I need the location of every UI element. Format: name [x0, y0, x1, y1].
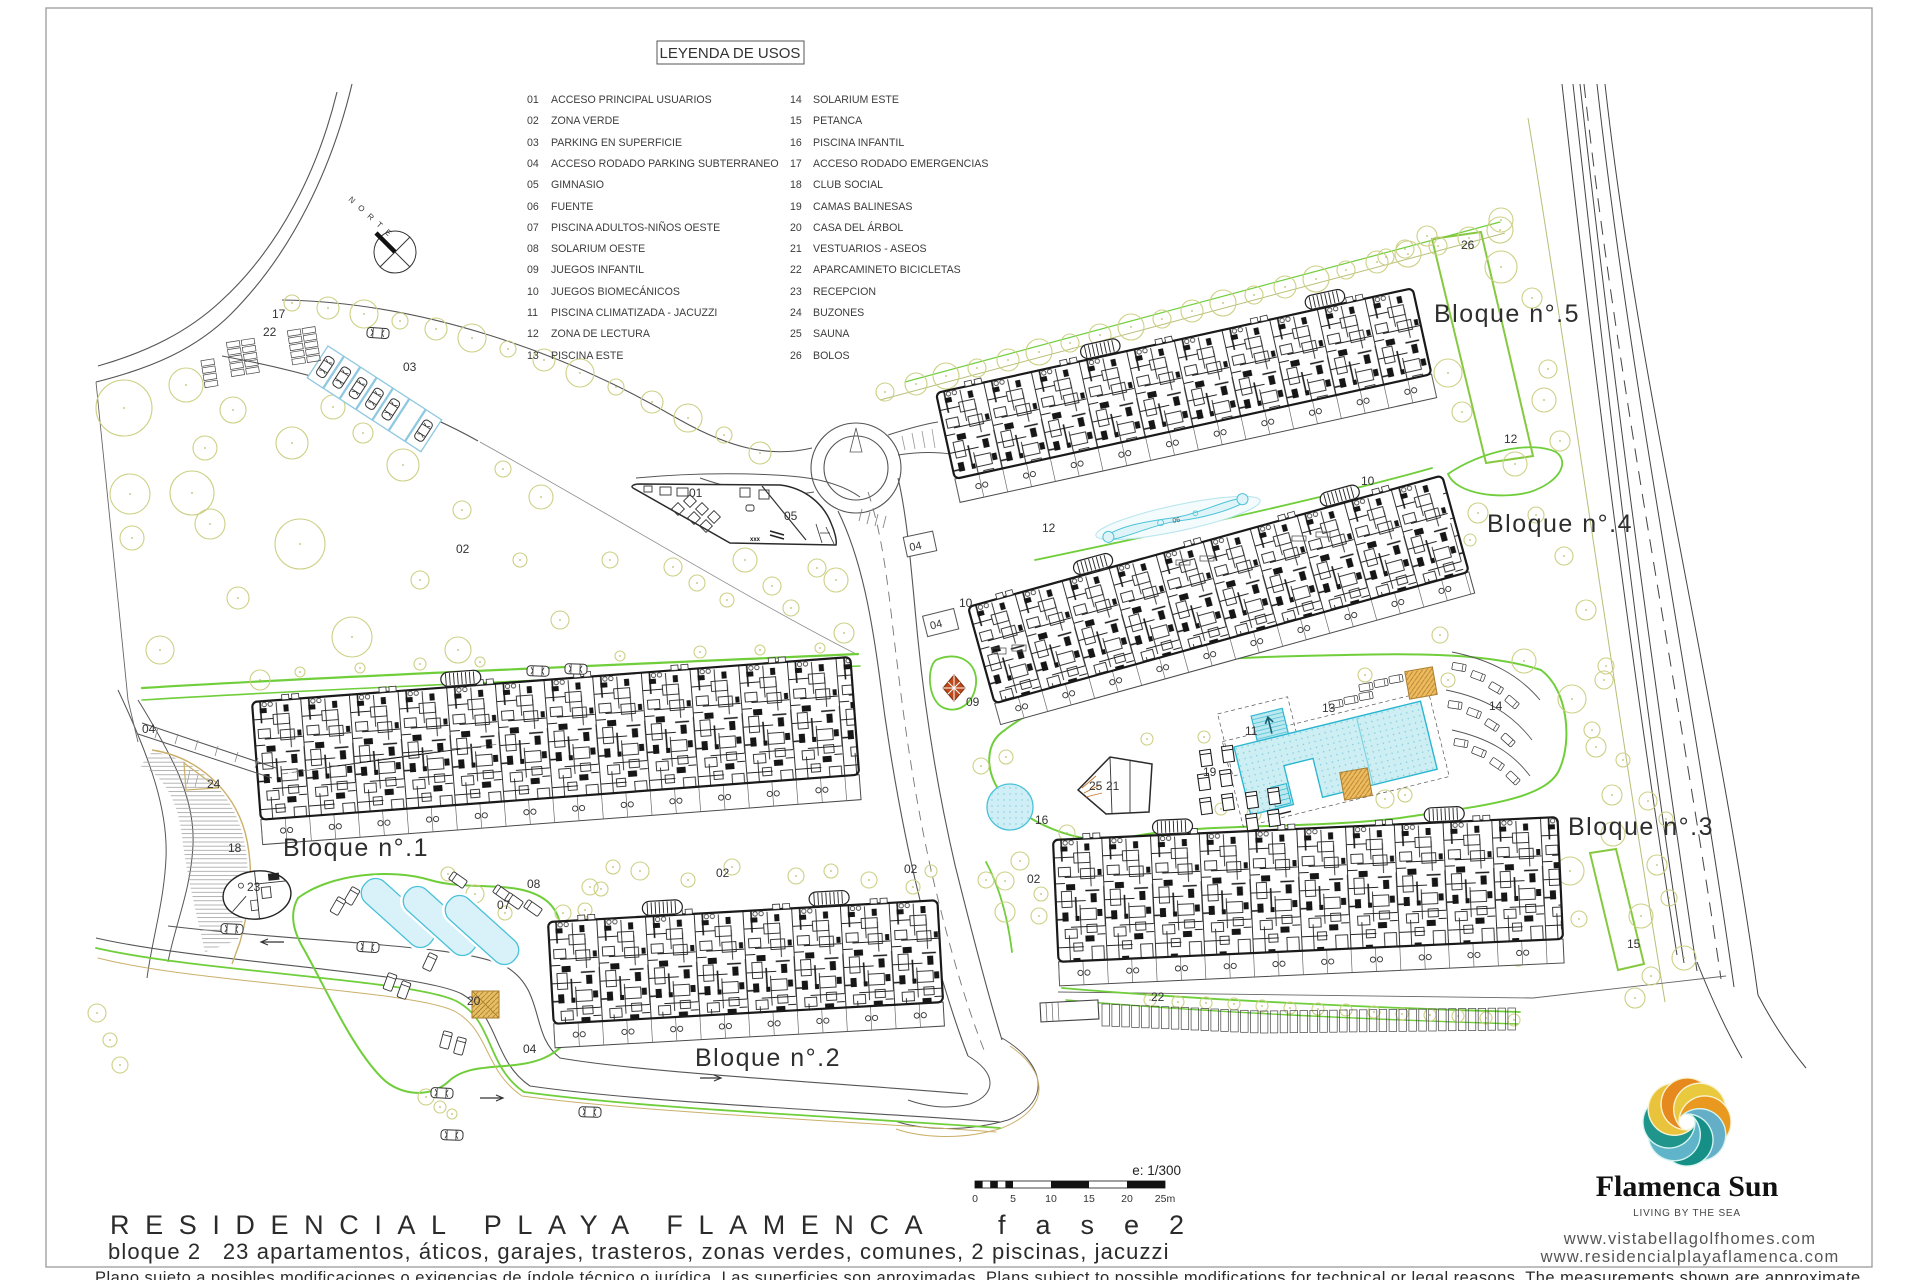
svg-text:15: 15: [1083, 1193, 1095, 1205]
svg-text:11: 11: [1245, 724, 1258, 738]
svg-text:24: 24: [207, 777, 221, 791]
svg-text:22: 22: [263, 325, 277, 339]
svg-text:ZONA DE LECTURA: ZONA DE LECTURA: [551, 328, 651, 340]
svg-text:07: 07: [497, 898, 511, 912]
svg-text:bloque 2 23 apartamentos, át: bloque 2 23 apartamentos, áticos, garaje…: [108, 1239, 1170, 1264]
svg-text:02: 02: [456, 542, 470, 556]
svg-text:18: 18: [790, 179, 802, 191]
svg-text:xxx: xxx: [750, 537, 761, 543]
svg-text:04: 04: [908, 540, 922, 554]
svg-text:10: 10: [1045, 1193, 1057, 1205]
svg-text:21: 21: [790, 243, 802, 255]
svg-text:20: 20: [790, 222, 802, 234]
svg-text:10: 10: [1361, 474, 1375, 488]
svg-text:26: 26: [1461, 238, 1475, 252]
svg-text:JUEGOS BIOMECÁNICOS: JUEGOS BIOMECÁNICOS: [551, 285, 680, 298]
svg-text:ACCESO PRINCIPAL USUARIOS: ACCESO PRINCIPAL USUARIOS: [551, 94, 712, 106]
svg-text:25: 25: [790, 328, 802, 340]
svg-text:13: 13: [527, 350, 539, 362]
svg-text:www.residencialplayaflamenca.c: www.residencialplayaflamenca.com: [1540, 1248, 1840, 1266]
svg-text:02: 02: [716, 866, 730, 880]
svg-text:14: 14: [1489, 699, 1503, 713]
svg-text:GIMNASIO: GIMNASIO: [551, 179, 604, 191]
svg-text:ZONA VERDE: ZONA VERDE: [551, 115, 619, 127]
svg-text:0: 0: [972, 1193, 978, 1205]
svg-text:17: 17: [272, 307, 286, 321]
svg-text:05: 05: [527, 179, 539, 191]
svg-text:Bloque n°.4: Bloque n°.4: [1487, 510, 1633, 538]
svg-text:SAUNA: SAUNA: [813, 328, 850, 340]
svg-text:04: 04: [142, 722, 156, 736]
svg-text:RECEPCION: RECEPCION: [813, 286, 876, 298]
svg-text:Plano sujeto a posibles modifi: Plano sujeto a posibles modificaciones o…: [95, 1269, 1866, 1280]
svg-text:PETANCA: PETANCA: [813, 115, 863, 127]
svg-text:01: 01: [527, 94, 539, 106]
svg-text:PISCINA ESTE: PISCINA ESTE: [551, 350, 623, 362]
svg-text:19: 19: [790, 201, 802, 213]
svg-text:23: 23: [790, 286, 802, 298]
svg-text:20: 20: [467, 994, 481, 1008]
svg-text:03: 03: [403, 360, 417, 374]
svg-text:09: 09: [966, 695, 980, 709]
svg-text:16: 16: [1035, 813, 1049, 827]
svg-text:06: 06: [527, 201, 539, 213]
svg-text:Bloque n°.2: Bloque n°.2: [695, 1044, 841, 1072]
svg-text:15: 15: [790, 115, 802, 127]
svg-text:08: 08: [527, 877, 541, 891]
svg-text:fase2: fase2: [998, 1210, 1214, 1240]
svg-text:APARCAMINETO BICICLETAS: APARCAMINETO BICICLETAS: [813, 264, 961, 276]
svg-text:CAMAS BALINESAS: CAMAS BALINESAS: [813, 201, 913, 213]
svg-text:PISCINA CLIMATIZADA - JACUZZI: PISCINA CLIMATIZADA - JACUZZI: [551, 307, 717, 319]
svg-text:LEYENDA DE USOS: LEYENDA DE USOS: [660, 45, 801, 62]
svg-text:BOLOS: BOLOS: [813, 350, 850, 362]
svg-text:BUZONES: BUZONES: [813, 307, 864, 319]
svg-text:19: 19: [1203, 765, 1217, 779]
svg-text:VESTUARIOS - ASEOS: VESTUARIOS - ASEOS: [813, 243, 927, 255]
svg-text:08: 08: [527, 243, 539, 255]
svg-text:13: 13: [1322, 701, 1336, 715]
svg-text:CASA DEL ÁRBOL: CASA DEL ÁRBOL: [813, 221, 903, 234]
svg-text:Bloque n°.3: Bloque n°.3: [1568, 813, 1714, 841]
svg-text:24: 24: [790, 307, 802, 319]
svg-text:Bloque n°.5: Bloque n°.5: [1434, 300, 1580, 328]
svg-text:ACCESO RODADO EMERGENCIAS: ACCESO RODADO EMERGENCIAS: [813, 158, 988, 170]
svg-text:10: 10: [527, 286, 539, 298]
svg-text:SOLARIUM OESTE: SOLARIUM OESTE: [551, 243, 645, 255]
svg-text:PISCINA ADULTOS-NIÑOS OESTE: PISCINA ADULTOS-NIÑOS OESTE: [551, 221, 720, 234]
svg-text:03: 03: [527, 137, 539, 149]
svg-text:02: 02: [1027, 872, 1041, 886]
svg-text:FUENTE: FUENTE: [551, 201, 593, 213]
svg-text:16: 16: [790, 137, 802, 149]
svg-text:10: 10: [959, 596, 973, 610]
svg-text:05: 05: [784, 509, 798, 523]
svg-text:15: 15: [1627, 937, 1641, 951]
svg-text:PISCINA INFANTIL: PISCINA INFANTIL: [813, 137, 904, 149]
svg-text:22: 22: [1151, 990, 1165, 1004]
svg-text:5: 5: [1010, 1193, 1016, 1205]
svg-text:14: 14: [790, 94, 802, 106]
svg-text:CLUB SOCIAL: CLUB SOCIAL: [813, 179, 883, 191]
svg-text:26: 26: [790, 350, 802, 362]
svg-text:www.vistabellagolfhomes.com: www.vistabellagolfhomes.com: [1563, 1230, 1817, 1248]
svg-text:23: 23: [247, 880, 261, 894]
svg-text:02: 02: [904, 862, 918, 876]
svg-text:RESIDENCIAL PLAYA FLAMENCA: RESIDENCIAL PLAYA FLAMENCA: [110, 1210, 938, 1240]
svg-text:21: 21: [1106, 779, 1120, 793]
svg-text:20: 20: [1121, 1193, 1133, 1205]
svg-text:e: 1/300: e: 1/300: [1132, 1163, 1181, 1178]
svg-text:12: 12: [1504, 432, 1518, 446]
svg-text:07: 07: [527, 222, 539, 234]
svg-text:09: 09: [527, 264, 539, 276]
svg-text:25m: 25m: [1155, 1193, 1176, 1205]
svg-text:PARKING EN SUPERFICIE: PARKING EN SUPERFICIE: [551, 137, 682, 149]
svg-text:JUEGOS INFANTIL: JUEGOS INFANTIL: [551, 264, 644, 276]
svg-text:25: 25: [1089, 779, 1103, 793]
svg-text:LIVING BY THE SEA: LIVING BY THE SEA: [1633, 1208, 1741, 1219]
svg-text:22: 22: [790, 264, 802, 276]
svg-text:Bloque n°.1: Bloque n°.1: [283, 834, 429, 862]
svg-text:04: 04: [523, 1042, 537, 1056]
svg-text:12: 12: [1042, 521, 1056, 535]
svg-text:12: 12: [527, 328, 539, 340]
svg-text:ACCESO RODADO PARKING SUBTERRA: ACCESO RODADO PARKING SUBTERRANEO: [551, 158, 779, 170]
svg-text:02: 02: [527, 115, 539, 127]
svg-text:01: 01: [689, 486, 703, 500]
svg-text:Flamenca Sun: Flamenca Sun: [1596, 1170, 1779, 1203]
svg-text:18: 18: [228, 841, 242, 855]
svg-text:SOLARIUM ESTE: SOLARIUM ESTE: [813, 94, 899, 106]
svg-text:17: 17: [790, 158, 802, 170]
svg-text:11: 11: [527, 307, 538, 319]
svg-text:04: 04: [527, 158, 539, 170]
